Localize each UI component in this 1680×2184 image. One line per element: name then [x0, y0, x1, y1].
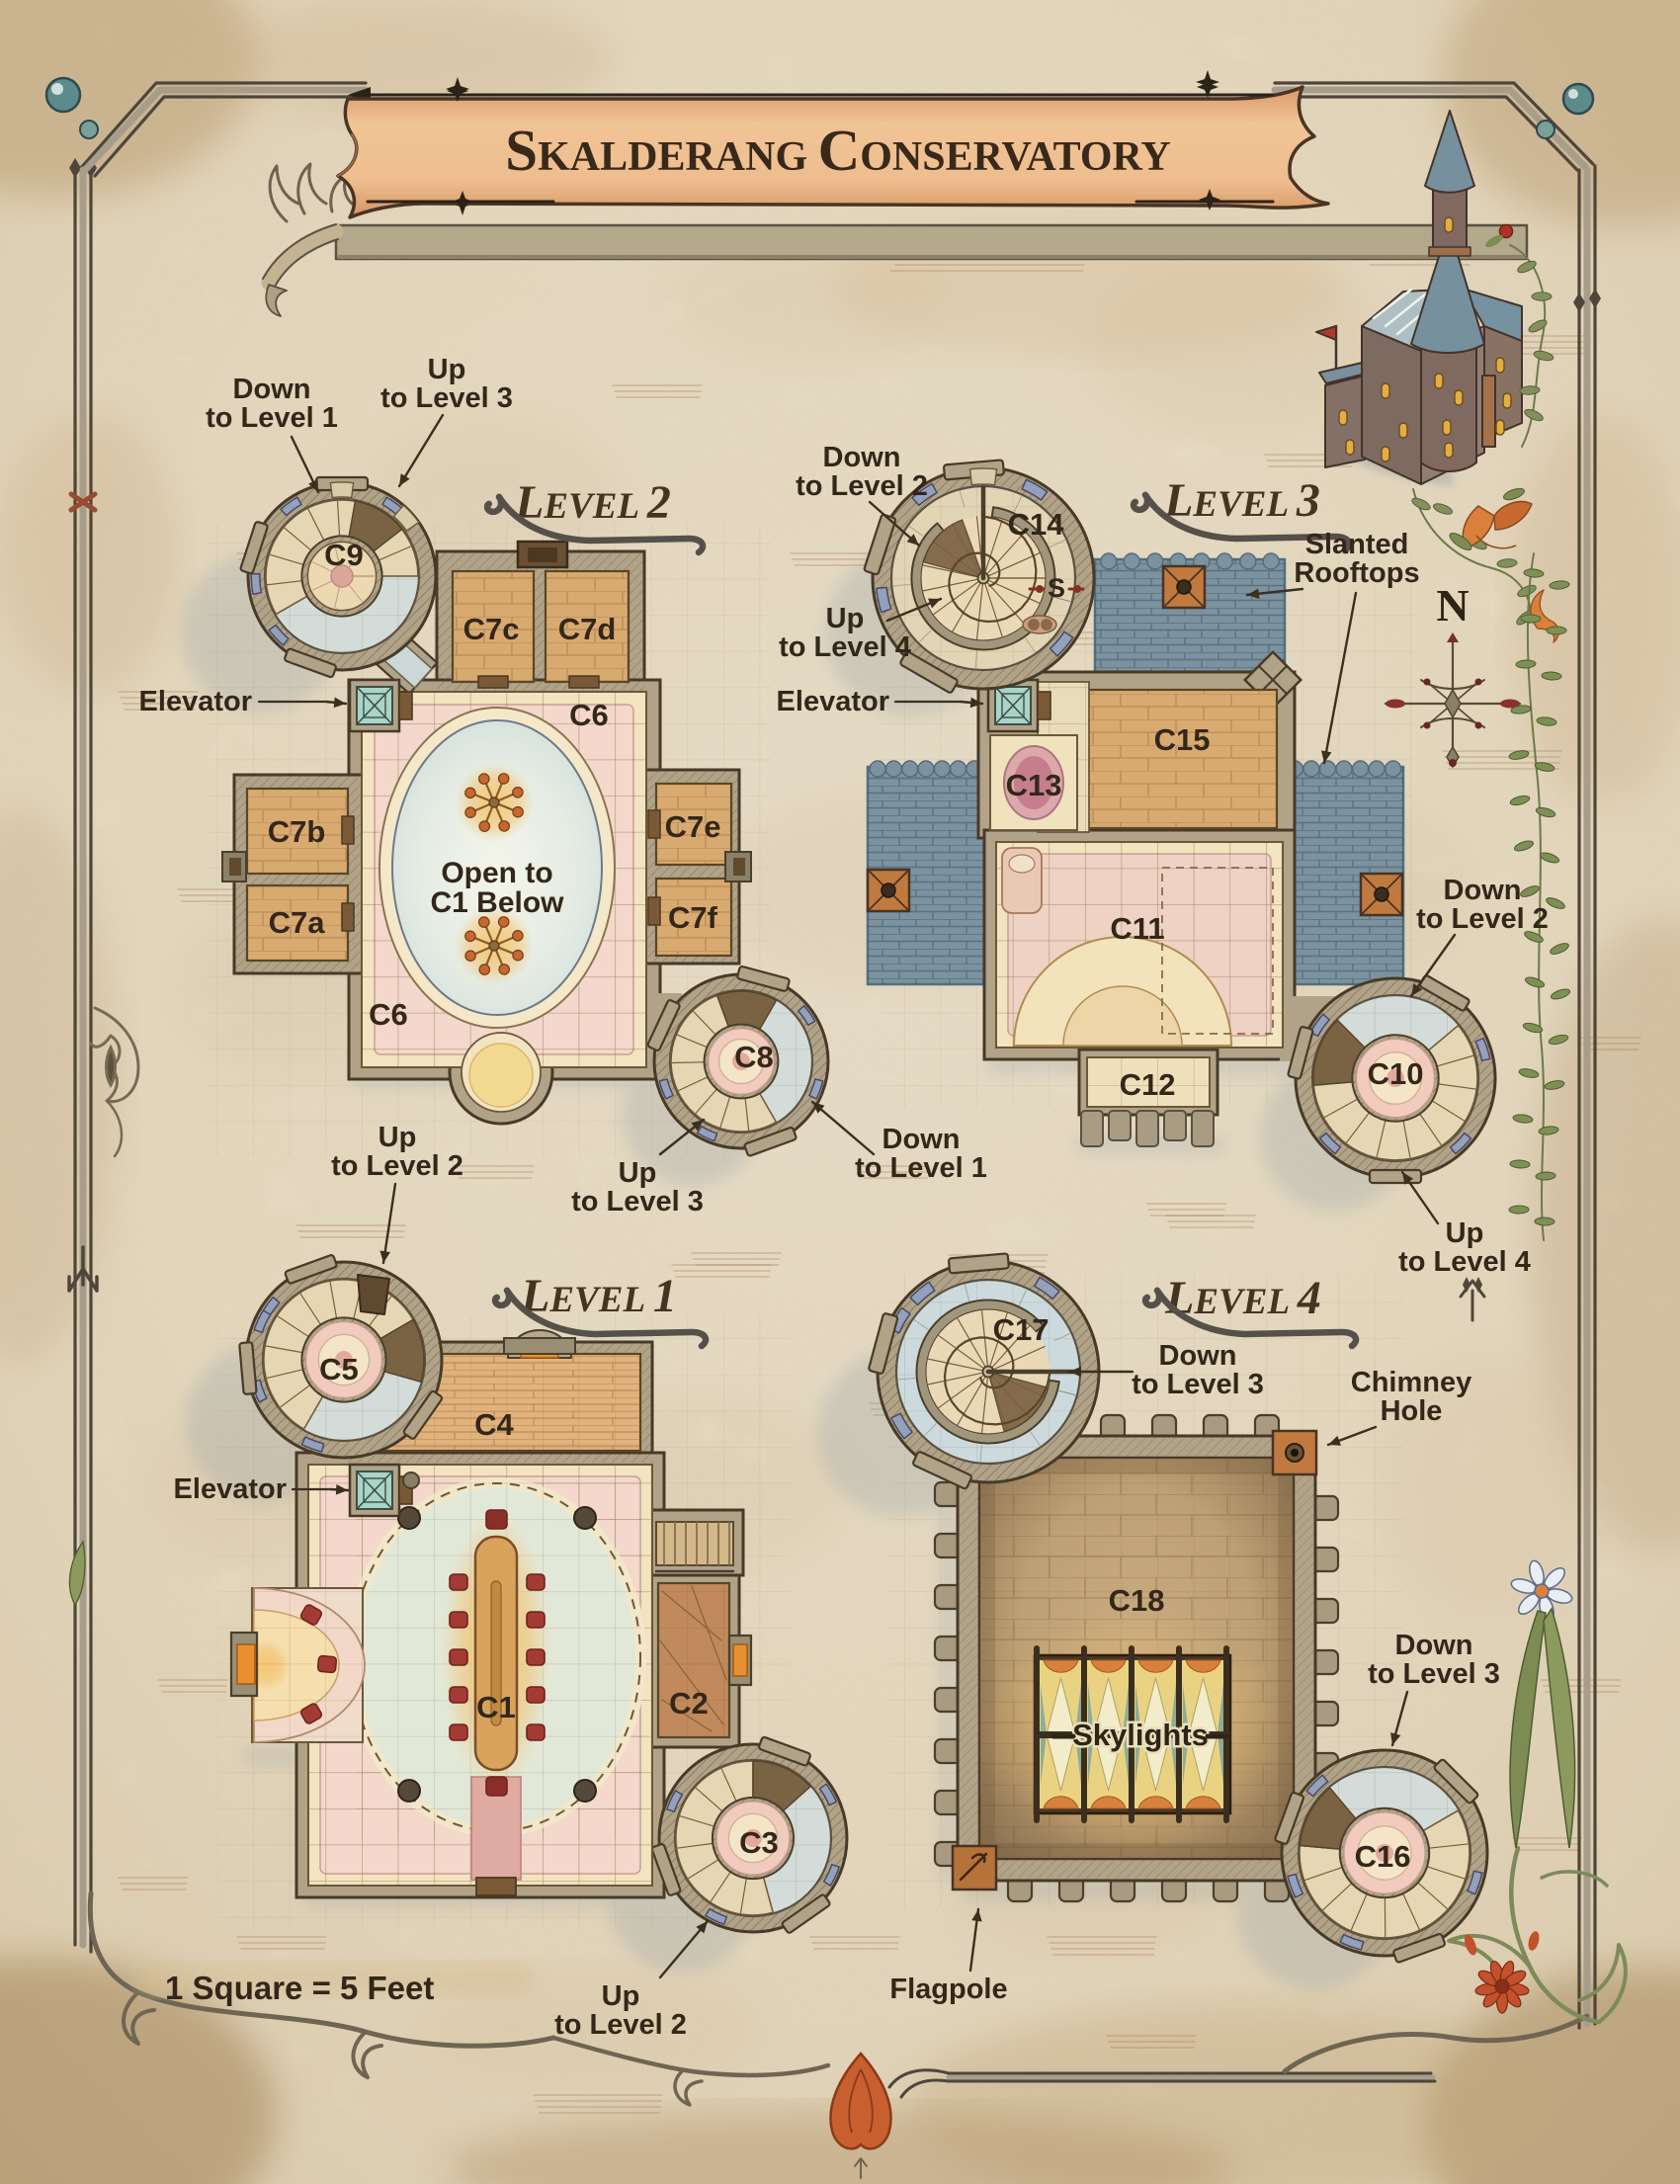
- svg-text:Up: Up: [1446, 1218, 1484, 1249]
- svg-text:C5: C5: [319, 1352, 359, 1386]
- svg-text:to Level 1: to Level 1: [855, 1152, 987, 1184]
- svg-text:C9: C9: [324, 538, 364, 572]
- svg-text:Down: Down: [1444, 875, 1522, 906]
- svg-text:to Level 3: to Level 3: [380, 382, 513, 414]
- svg-text:Slanted: Slanted: [1305, 529, 1409, 560]
- svg-text:Down: Down: [823, 442, 901, 473]
- svg-text:to Level 3: to Level 3: [571, 1186, 704, 1218]
- svg-text:C7a: C7a: [269, 905, 326, 940]
- svg-text:to Level 2: to Level 2: [796, 470, 928, 502]
- svg-text:to Level 4: to Level 4: [1398, 1246, 1531, 1278]
- svg-text:C1: C1: [476, 1690, 516, 1724]
- svg-text:C1 Below: C1 Below: [430, 886, 564, 919]
- svg-text:Down: Down: [233, 374, 311, 405]
- svg-text:Elevator: Elevator: [139, 686, 252, 717]
- svg-text:N: N: [1436, 580, 1469, 630]
- svg-text:to Level 1: to Level 1: [206, 402, 338, 434]
- svg-text:Up: Up: [619, 1157, 657, 1189]
- svg-text:C7e: C7e: [665, 809, 721, 844]
- svg-text:to Level 2: to Level 2: [1416, 903, 1549, 935]
- svg-text:1 Square = 5 Feet: 1 Square = 5 Feet: [165, 1970, 434, 2006]
- svg-text:C4: C4: [474, 1407, 514, 1442]
- svg-text:Elevator: Elevator: [777, 686, 889, 717]
- svg-text:Down: Down: [1159, 1340, 1237, 1372]
- svg-text:C11: C11: [1110, 911, 1164, 946]
- svg-text:C6: C6: [569, 698, 609, 732]
- svg-text:to Level 2: to Level 2: [554, 2009, 687, 2041]
- svg-text:C7b: C7b: [268, 814, 326, 849]
- svg-text:C3: C3: [739, 1825, 779, 1860]
- svg-text:Chimney: Chimney: [1351, 1367, 1471, 1398]
- svg-text:C7f: C7f: [668, 900, 718, 935]
- svg-text:Flagpole: Flagpole: [889, 1974, 1007, 2005]
- svg-text:C2: C2: [669, 1686, 709, 1721]
- svg-text:Hole: Hole: [1381, 1395, 1443, 1427]
- svg-text:C7c: C7c: [463, 612, 520, 646]
- svg-text:Open to: Open to: [441, 857, 552, 889]
- svg-text:C13: C13: [1006, 768, 1062, 802]
- svg-text:Up: Up: [378, 1122, 417, 1153]
- svg-text:C6: C6: [369, 997, 408, 1032]
- svg-text:Skylights: Skylights: [1072, 1718, 1209, 1752]
- svg-text:C12: C12: [1120, 1067, 1176, 1102]
- svg-text:Up: Up: [602, 1980, 640, 2012]
- svg-text:C18: C18: [1109, 1583, 1165, 1618]
- svg-text:Rooftops: Rooftops: [1294, 557, 1419, 589]
- svg-text:Up: Up: [428, 354, 466, 385]
- svg-text:C15: C15: [1154, 722, 1211, 757]
- svg-text:C17: C17: [993, 1312, 1050, 1347]
- svg-text:Down: Down: [1395, 1630, 1473, 1661]
- svg-text:C16: C16: [1355, 1839, 1411, 1874]
- svg-text:to Level 3: to Level 3: [1132, 1369, 1264, 1400]
- svg-text:to Level 4: to Level 4: [779, 631, 911, 663]
- svg-text:Elevator: Elevator: [174, 1473, 287, 1505]
- svg-text:to Level 3: to Level 3: [1368, 1658, 1500, 1690]
- svg-text:to Level 2: to Level 2: [331, 1150, 463, 1182]
- svg-text:C8: C8: [734, 1040, 774, 1074]
- svg-text:C10: C10: [1368, 1056, 1424, 1091]
- svg-text:Down: Down: [882, 1124, 961, 1155]
- svg-text:C7d: C7d: [558, 612, 617, 646]
- svg-text:Up: Up: [826, 603, 865, 634]
- svg-text:S: S: [1048, 573, 1065, 603]
- svg-text:C14: C14: [1008, 507, 1065, 542]
